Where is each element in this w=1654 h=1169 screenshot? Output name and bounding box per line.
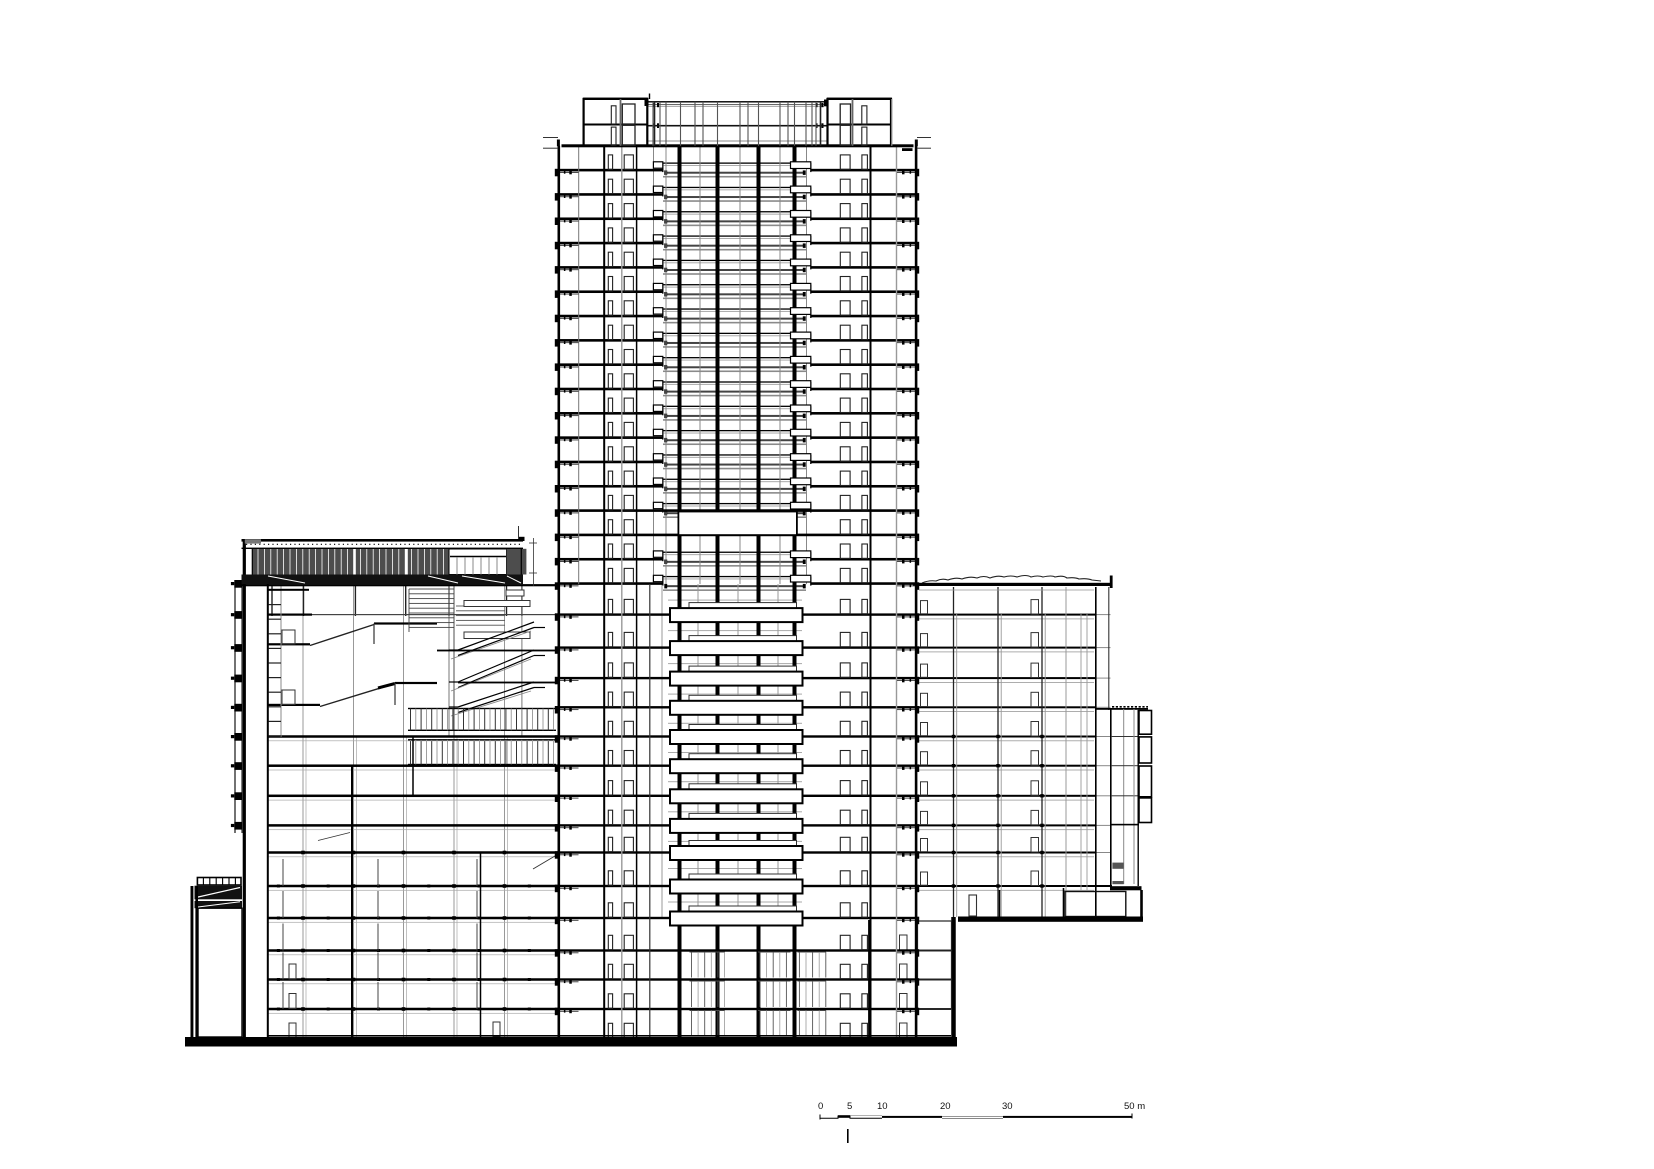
svg-text:0: 0: [818, 1101, 823, 1112]
svg-text:30: 30: [1002, 1101, 1013, 1112]
svg-text:10: 10: [877, 1101, 888, 1112]
svg-text:20: 20: [940, 1101, 951, 1112]
svg-text:5: 5: [847, 1101, 852, 1112]
svg-text:50 m: 50 m: [1124, 1101, 1145, 1112]
